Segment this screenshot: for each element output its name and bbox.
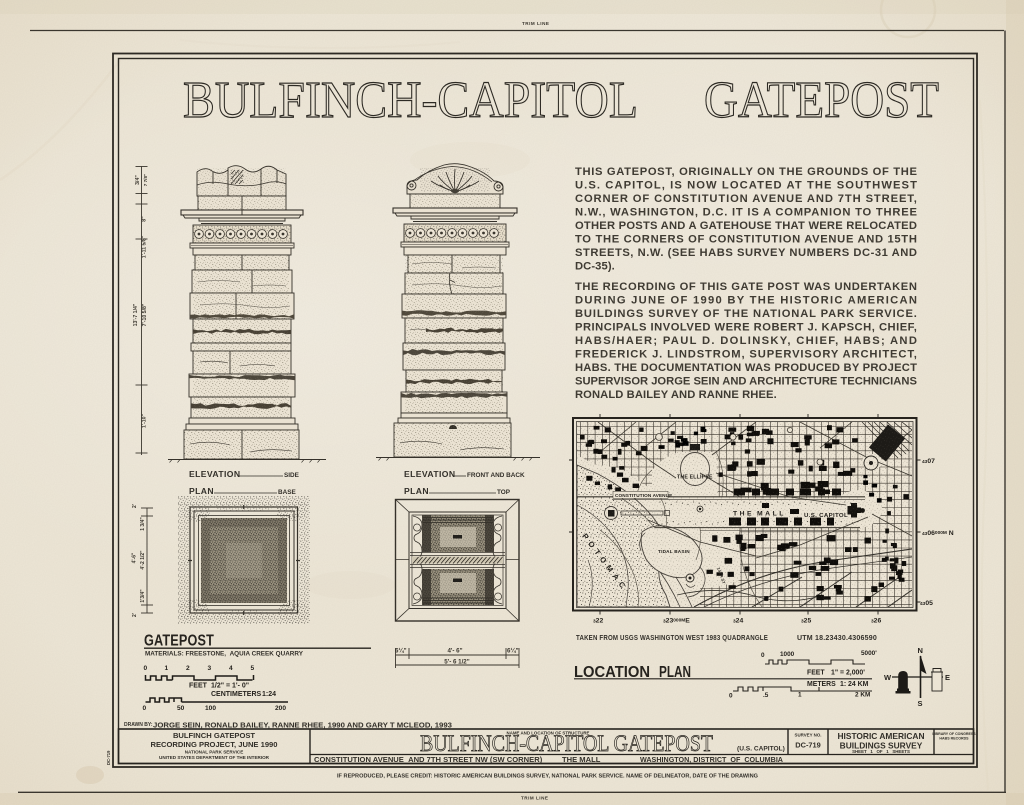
- svg-text:4'-2 1/2": 4'-2 1/2": [140, 550, 146, 570]
- svg-text:SURVEY NO.: SURVEY NO.: [795, 733, 822, 738]
- svg-text:DC-35).: DC-35).: [575, 261, 615, 273]
- svg-text:THE RECORDING OF THIS GATE POS: THE RECORDING OF THIS GATE POST WAS UNDE…: [575, 281, 917, 293]
- svg-text:1" = 2,000': 1" = 2,000': [831, 670, 865, 677]
- svg-text:TO THE CORNERS OF CONSTITUTION: TO THE CORNERS OF CONSTITUTION AVENUE AN…: [575, 234, 917, 246]
- svg-text:7 7/8": 7 7/8": [143, 174, 148, 186]
- svg-text:8": 8": [142, 216, 148, 222]
- svg-text:BULFINCH-CAPITOL: BULFINCH-CAPITOL: [183, 72, 638, 129]
- svg-text:DC-719: DC-719: [106, 750, 111, 765]
- svg-text:SIDE: SIDE: [284, 472, 300, 479]
- svg-text:S: S: [918, 699, 923, 708]
- svg-text:1'3/4": 1'3/4": [140, 589, 146, 603]
- svg-text:4305: 4305: [920, 600, 933, 607]
- svg-text:1:24: 1:24: [262, 691, 276, 698]
- svg-text:TOP: TOP: [497, 489, 511, 496]
- svg-text:CONSTITUTION AVENUE: CONSTITUTION AVENUE: [615, 493, 672, 498]
- svg-text:1'-10": 1'-10": [142, 413, 148, 428]
- svg-text:324: 324: [733, 618, 743, 625]
- svg-text:1: 24 KM: 1: 24 KM: [840, 681, 869, 688]
- svg-text:CORNER OF CONSTITUTION AVENUE: CORNER OF CONSTITUTION AVENUE AND 7TH ST…: [575, 193, 917, 205]
- svg-text:TIDAL BASIN: TIDAL BASIN: [658, 549, 690, 554]
- svg-text:1'-11 5/8": 1'-11 5/8": [142, 235, 148, 258]
- svg-text:BULFINCH-CAPITOL GATEPOST: BULFINCH-CAPITOL GATEPOST: [420, 731, 713, 756]
- svg-text:WASHINGTON, DISTRICT OF COLU: WASHINGTON, DISTRICT OF COLUMBIA: [640, 755, 783, 764]
- svg-text:JORGE SEIN, RONALD BAILEY, RAN: JORGE SEIN, RONALD BAILEY, RANNE RHEE, 1…: [153, 721, 452, 730]
- svg-text:RONALD BAILEY AND RANNE RHEE.: RONALD BAILEY AND RANNE RHEE.: [575, 389, 777, 401]
- svg-text:DURING JUNE OF 1990 BY THE HIS: DURING JUNE OF 1990 BY THE HISTORIC AMER…: [575, 295, 917, 307]
- svg-text:HABS/HAER; PAUL D. DOLINSKY, C: HABS/HAER; PAUL D. DOLINSKY, CHIEF, HABS…: [575, 335, 917, 347]
- svg-text:FEET: FEET: [807, 670, 825, 677]
- svg-text:100: 100: [205, 705, 216, 712]
- svg-text:W: W: [884, 673, 892, 682]
- svg-text:1/2" = 1'- 0": 1/2" = 1'- 0": [211, 683, 249, 690]
- svg-text:6¼": 6¼": [395, 648, 407, 655]
- svg-text:4307: 4307: [922, 458, 935, 465]
- svg-text:4'- 6": 4'- 6": [447, 648, 462, 655]
- svg-text:U.S. CAPITOL: U.S. CAPITOL: [804, 513, 848, 519]
- svg-text:SUPERVISOR JORGE SEIN AND ARCH: SUPERVISOR JORGE SEIN AND ARCHITECTURE T…: [575, 376, 917, 388]
- svg-text:HABS RECORDS: HABS RECORDS: [939, 737, 969, 741]
- svg-text:0: 0: [761, 652, 765, 659]
- svg-text:0: 0: [143, 705, 147, 712]
- svg-text:5000': 5000': [861, 650, 877, 657]
- svg-text:N: N: [918, 646, 923, 655]
- svg-text:ELEVATION: ELEVATION: [189, 469, 241, 479]
- svg-text:1000: 1000: [780, 651, 795, 658]
- svg-text:.5: .5: [763, 692, 769, 699]
- svg-text:DRAWN BY:: DRAWN BY:: [124, 722, 153, 728]
- svg-text:0: 0: [729, 693, 733, 700]
- svg-text:TAKEN FROM USGS WASHINGTON WES: TAKEN FROM USGS WASHINGTON WEST 1983 QUA…: [576, 635, 768, 642]
- svg-text:4306000M N: 4306000M N: [922, 530, 954, 537]
- svg-text:E: E: [945, 673, 950, 682]
- svg-text:UTM 18.23430.4306590: UTM 18.23430.4306590: [797, 635, 877, 642]
- svg-text:CONSTITUTION AVENUE AND 7TH S: CONSTITUTION AVENUE AND 7TH STREET NW (S…: [314, 755, 543, 764]
- svg-text:326: 326: [871, 618, 881, 625]
- svg-text:IF REPRODUCED, PLEASE CREDIT:: IF REPRODUCED, PLEASE CREDIT: HISTORIC A…: [337, 774, 758, 780]
- svg-text:U.S. CAPITOL, IS NOW LOCATED A: U.S. CAPITOL, IS NOW LOCATED AT THE SOUT…: [575, 180, 917, 192]
- svg-text:TRIM LINE: TRIM LINE: [521, 796, 548, 801]
- svg-text:2 KM: 2 KM: [855, 692, 870, 699]
- svg-text:TRIM LINE: TRIM LINE: [522, 21, 549, 26]
- svg-text:PLAN: PLAN: [404, 486, 429, 496]
- svg-text:2: 2: [186, 665, 190, 672]
- svg-text:FEET: FEET: [189, 683, 208, 690]
- svg-text:3: 3: [208, 665, 212, 672]
- svg-text:GATEPOST: GATEPOST: [144, 633, 214, 650]
- svg-text:0: 0: [144, 665, 148, 672]
- svg-text:CENTIMETERS: CENTIMETERS: [211, 691, 262, 698]
- svg-text:HISTORIC AMERICAN: HISTORIC AMERICAN: [837, 731, 924, 741]
- svg-text:OTHER POSTS AND A GATEHOUSE TH: OTHER POSTS AND A GATEHOUSE THAT WERE RE…: [575, 220, 917, 232]
- svg-text:SHEET 1 OF 1 SHEETS: SHEET 1 OF 1 SHEETS: [852, 749, 910, 754]
- svg-text:NATIONAL PARK SERVICE: NATIONAL PARK SERVICE: [185, 750, 244, 755]
- svg-text:5: 5: [251, 665, 255, 672]
- svg-text:7'-10 5/8": 7'-10 5/8": [142, 303, 148, 326]
- svg-text:1 3/4": 1 3/4": [140, 517, 146, 531]
- svg-text:GATEPOST: GATEPOST: [704, 72, 939, 129]
- svg-text:4'-6": 4'-6": [132, 552, 138, 563]
- svg-text:DC-719: DC-719: [795, 741, 820, 750]
- svg-text:N.W., WASHINGTON, D.C. IT IS A: N.W., WASHINGTON, D.C. IT IS A COMPANION…: [575, 207, 917, 219]
- svg-text:STREETS, N.W. (SEE HABS SURVEY: STREETS, N.W. (SEE HABS SURVEY NUMBERS D…: [575, 247, 917, 259]
- svg-text:THE: THE: [733, 510, 754, 517]
- svg-text:FRONT AND BACK: FRONT AND BACK: [467, 472, 525, 479]
- svg-text:METERS: METERS: [807, 681, 836, 688]
- svg-text:BUILDINGS SURVEY OF THE NATION: BUILDINGS SURVEY OF THE NATIONAL PARK SE…: [575, 308, 917, 320]
- svg-text:4: 4: [229, 665, 233, 672]
- svg-text:3/4": 3/4": [135, 175, 141, 185]
- svg-text:BASE: BASE: [278, 489, 296, 496]
- svg-text:13'-7 1/4": 13'-7 1/4": [133, 303, 139, 326]
- svg-text:2': 2': [132, 504, 138, 508]
- svg-text:1: 1: [165, 665, 169, 672]
- svg-text:6¼": 6¼": [507, 648, 519, 655]
- svg-text:2': 2': [132, 613, 138, 617]
- svg-text:THIS GATEPOST, ORIGINALLY ON T: THIS GATEPOST, ORIGINALLY ON THE GROUNDS…: [575, 166, 917, 178]
- svg-text:50: 50: [177, 705, 185, 712]
- svg-text:THE ELLIPSE: THE ELLIPSE: [677, 475, 713, 481]
- svg-text:5'- 6 1/2": 5'- 6 1/2": [444, 659, 469, 666]
- svg-text:(U.S. CAPITOL): (U.S. CAPITOL): [737, 746, 785, 753]
- svg-text:ELEVATION: ELEVATION: [404, 469, 456, 479]
- svg-text:FREDERICK J. LINDSTROM, SUPERV: FREDERICK J. LINDSTROM, SUPERVISORY ARCH…: [575, 349, 917, 361]
- svg-text:MATERIALS: FREESTONE, AQUIA C: MATERIALS: FREESTONE, AQUIA CREEK QUARRY: [145, 651, 304, 658]
- svg-text:THE MALL: THE MALL: [562, 755, 601, 764]
- svg-text:200: 200: [275, 705, 286, 712]
- svg-text:PLAN: PLAN: [189, 486, 214, 496]
- svg-text:325: 325: [801, 618, 811, 625]
- svg-text:BULFINCH GATEPOST: BULFINCH GATEPOST: [173, 731, 255, 740]
- svg-text:PRINCIPALS INVOLVED WERE ROBER: PRINCIPALS INVOLVED WERE ROBERT J. KAPSC…: [575, 322, 917, 334]
- svg-text:UNITED STATES DEPARTMENT OF TH: UNITED STATES DEPARTMENT OF THE INTERIOR: [159, 755, 270, 760]
- svg-text:1: 1: [798, 692, 802, 699]
- svg-text:HABS. THE DOCUMENTATION WAS PR: HABS. THE DOCUMENTATION WAS PRODUCED BY …: [575, 362, 917, 374]
- svg-text:LIBRARY OF CONGRESS: LIBRARY OF CONGRESS: [932, 732, 976, 736]
- svg-text:RECORDING PROJECT, JUNE 1990: RECORDING PROJECT, JUNE 1990: [150, 740, 277, 749]
- svg-text:322: 322: [593, 618, 603, 625]
- svg-text:MALL: MALL: [757, 510, 786, 517]
